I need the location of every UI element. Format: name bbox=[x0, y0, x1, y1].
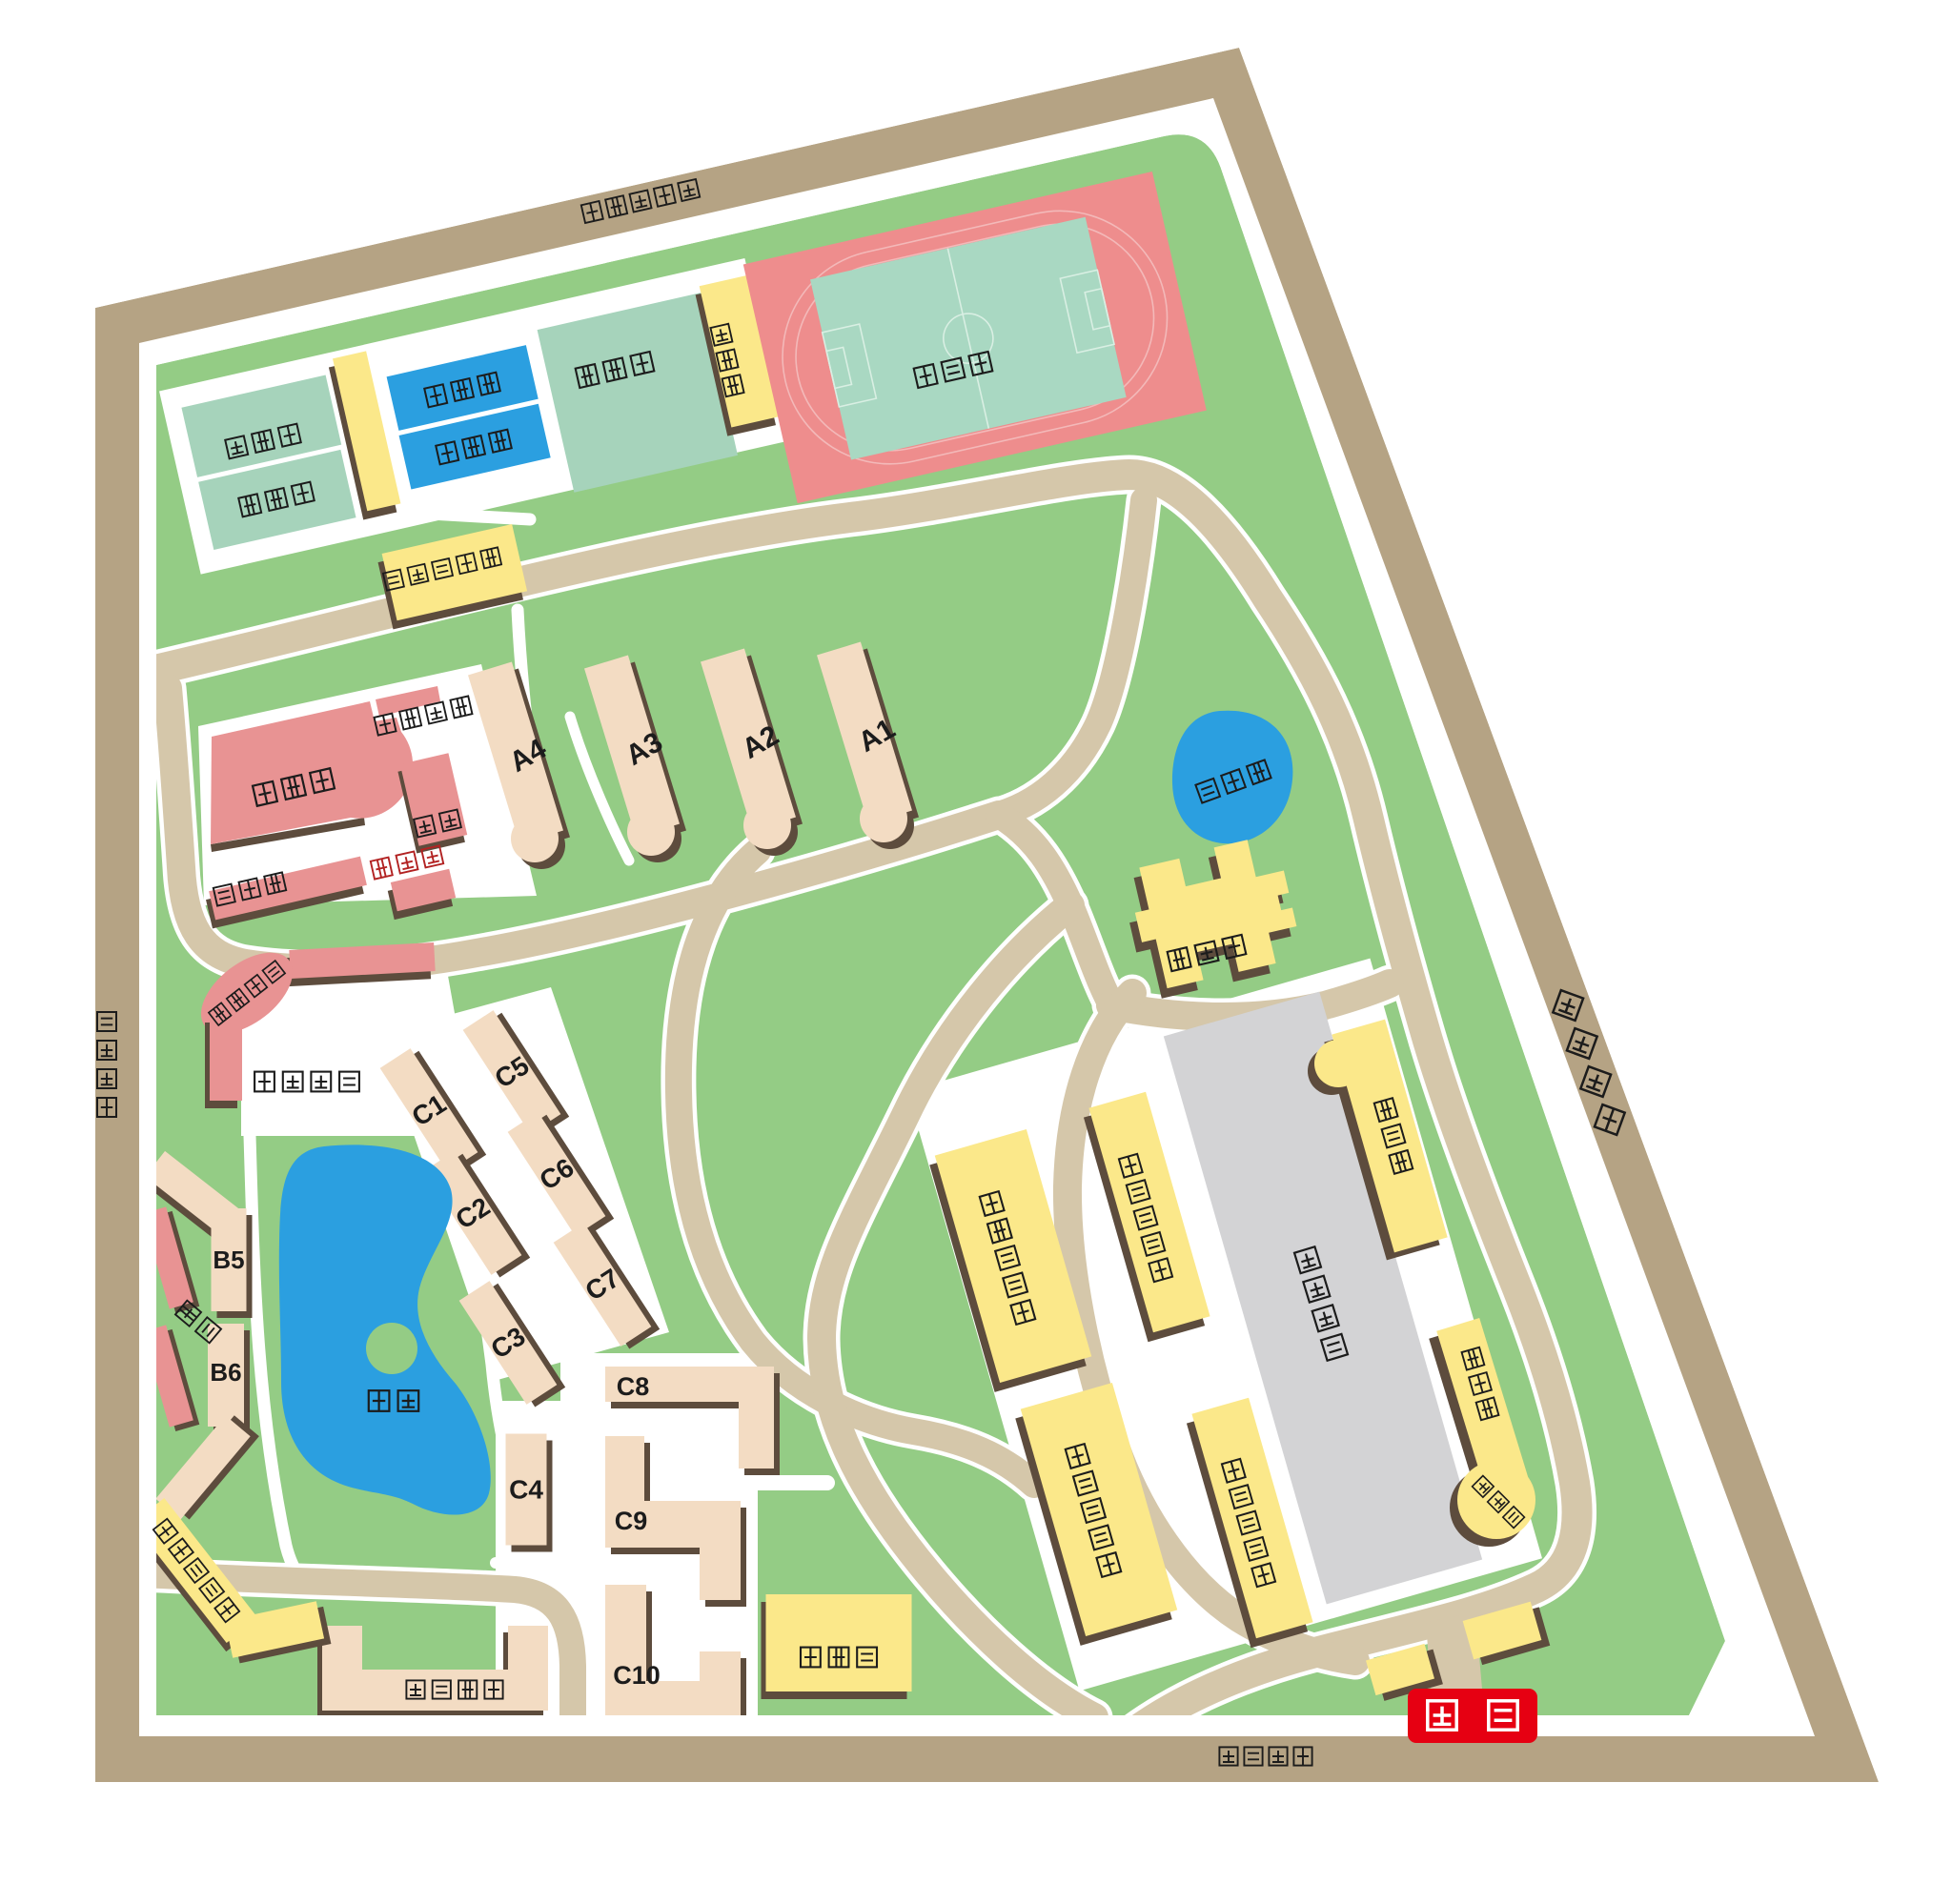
svg-text:B5: B5 bbox=[213, 1246, 244, 1274]
svg-text:C10: C10 bbox=[613, 1661, 661, 1690]
svg-text:B6: B6 bbox=[210, 1358, 241, 1387]
svg-text:C9: C9 bbox=[615, 1507, 648, 1535]
svg-text:C8: C8 bbox=[617, 1372, 650, 1401]
svg-text:C4: C4 bbox=[509, 1475, 543, 1505]
